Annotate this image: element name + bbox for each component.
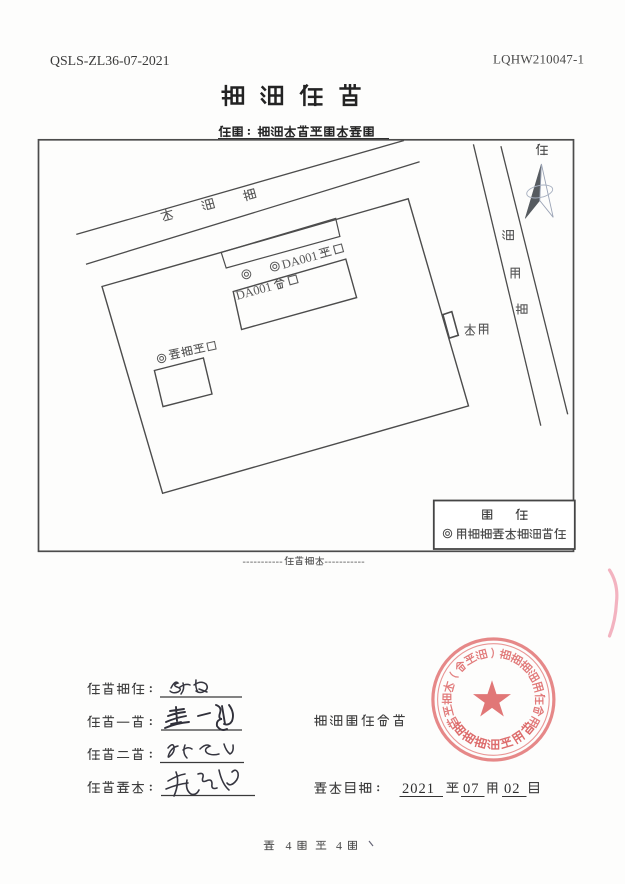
svg-text:-----------: ----------- [243, 557, 283, 568]
svg-text:4: 4 [336, 839, 342, 853]
svg-text:4: 4 [286, 839, 292, 853]
svg-text:DA001: DA001 [234, 279, 273, 302]
svg-text:QSLS-ZL36-07-2021: QSLS-ZL36-07-2021 [50, 53, 170, 68]
svg-text:02: 02 [504, 781, 521, 797]
svg-text:-----------: ----------- [325, 557, 365, 568]
svg-text:2021: 2021 [402, 781, 435, 797]
svg-text:LQHW210047-1: LQHW210047-1 [493, 52, 584, 67]
svg-text:07: 07 [463, 781, 480, 797]
